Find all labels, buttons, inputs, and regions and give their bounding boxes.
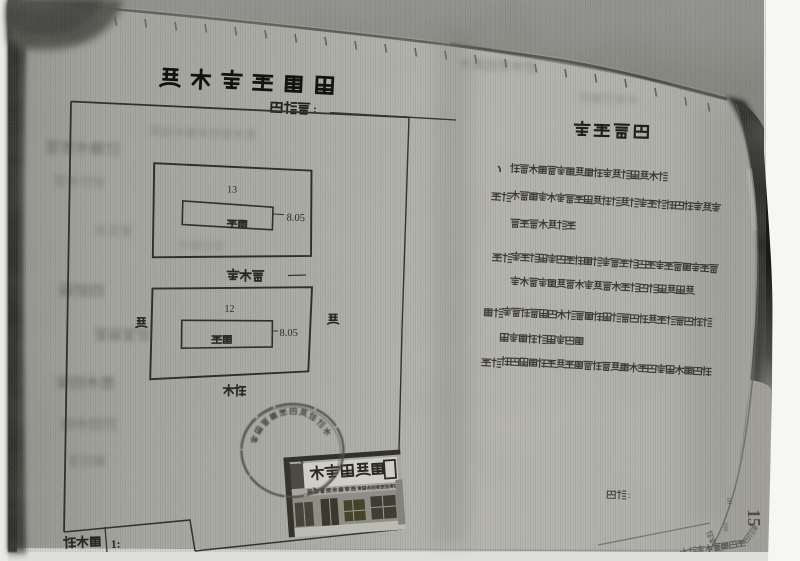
svg-text:13: 13: [227, 184, 237, 195]
svg-text:1:: 1:: [111, 539, 121, 551]
svg-text:8.05: 8.05: [280, 328, 298, 339]
svg-text::: :: [628, 490, 631, 500]
svg-text:8.05: 8.05: [286, 213, 305, 225]
svg-text:12: 12: [225, 304, 235, 315]
